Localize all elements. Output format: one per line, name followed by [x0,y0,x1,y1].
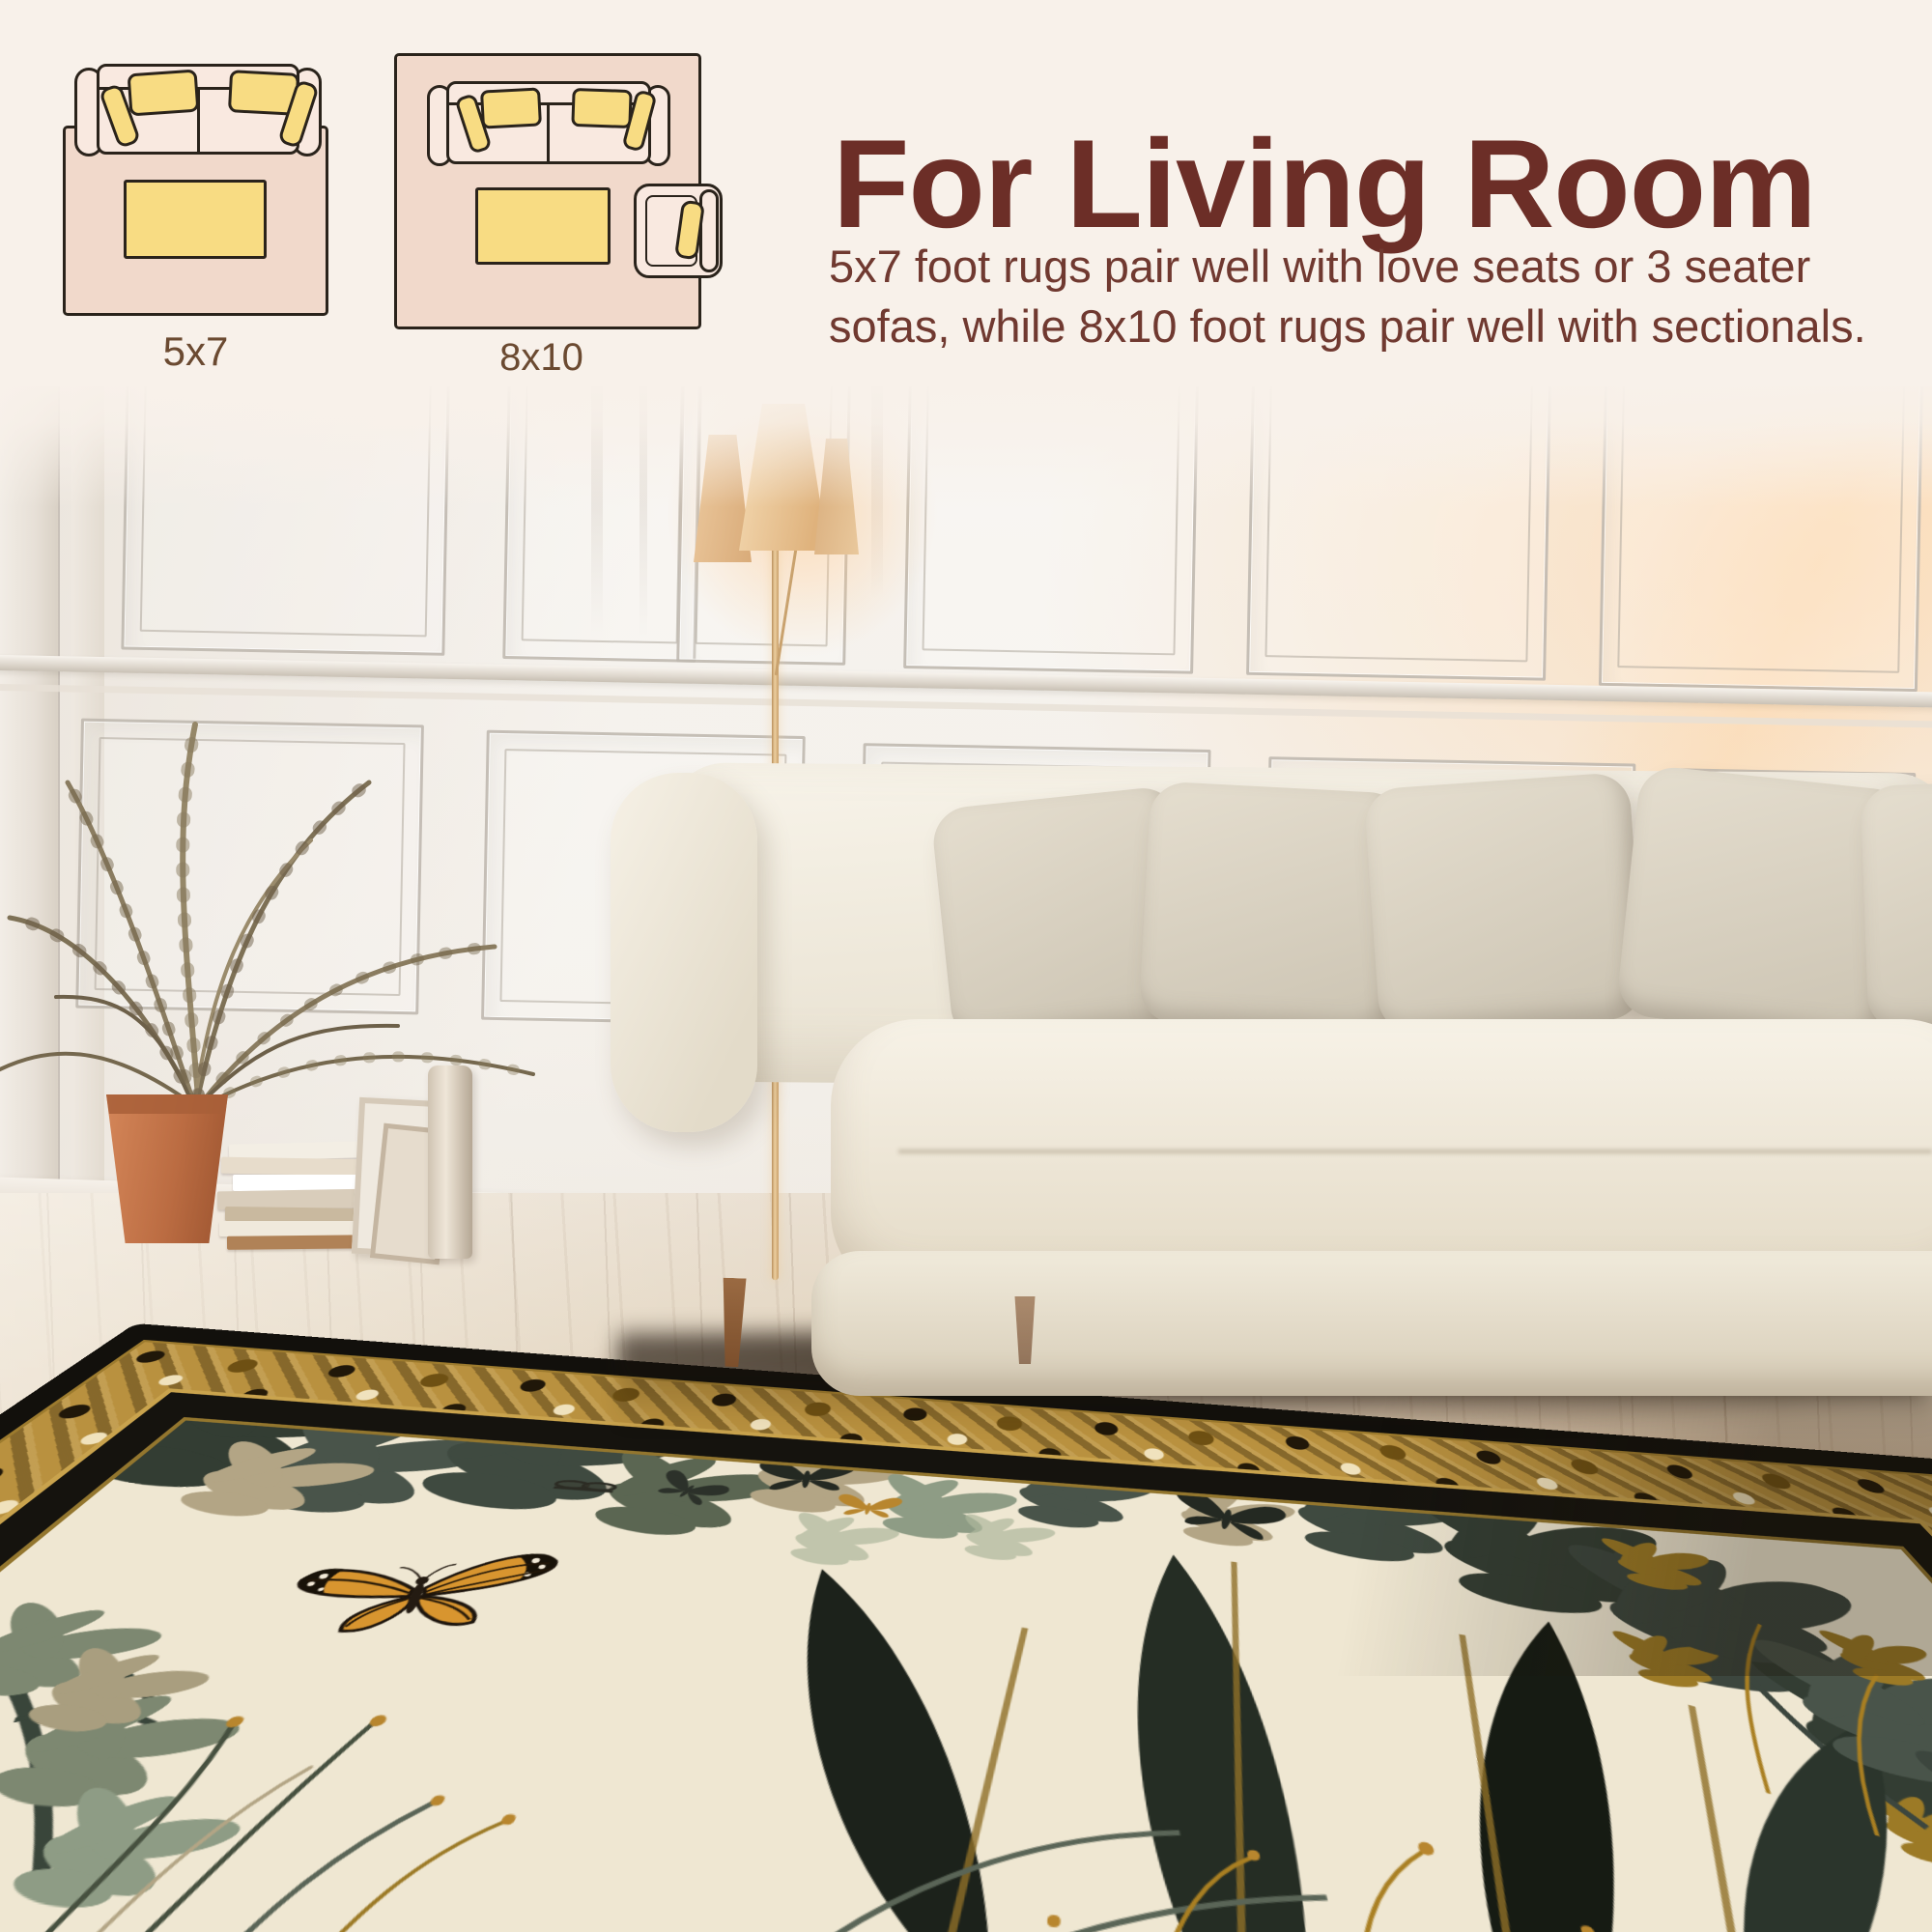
throw-pillow-icon [480,87,542,128]
armchair-back-icon [699,189,719,272]
throw-pillow-icon [571,88,632,128]
sofa-base [811,1251,1932,1396]
sofa-seat-crease [898,1150,1932,1153]
sofa-pillow [1363,772,1645,1037]
throw-pillow-icon [128,70,200,117]
header-band: 5x7 8x10 For Living Room 5x7 foot rugs p… [0,0,1932,386]
monarch-butterfly-motif [270,1552,559,1636]
coffee-table-icon [124,180,267,259]
sofa-armrest [611,773,757,1132]
size-label-5x7: 5x7 [116,328,275,375]
description-text: 5x7 foot rugs pair well with love seats … [829,237,1911,356]
living-room-photo [0,377,1932,1932]
photo-top-fade [0,377,1932,507]
coffee-table-icon [475,187,611,265]
sofa-pillow [1861,779,1932,1033]
page-title: For Living Room [833,111,1915,256]
size-label-8x10: 8x10 [462,336,621,380]
sofa-seam [547,102,550,162]
description-line-2: sofas, while 8x10 foot rugs pair well wi… [829,297,1911,356]
rug-size-guide-infographic: 5x7 8x10 For Living Room 5x7 foot rugs p… [0,0,1932,1932]
description-line-1: 5x7 foot rugs pair well with love seats … [829,237,1911,297]
